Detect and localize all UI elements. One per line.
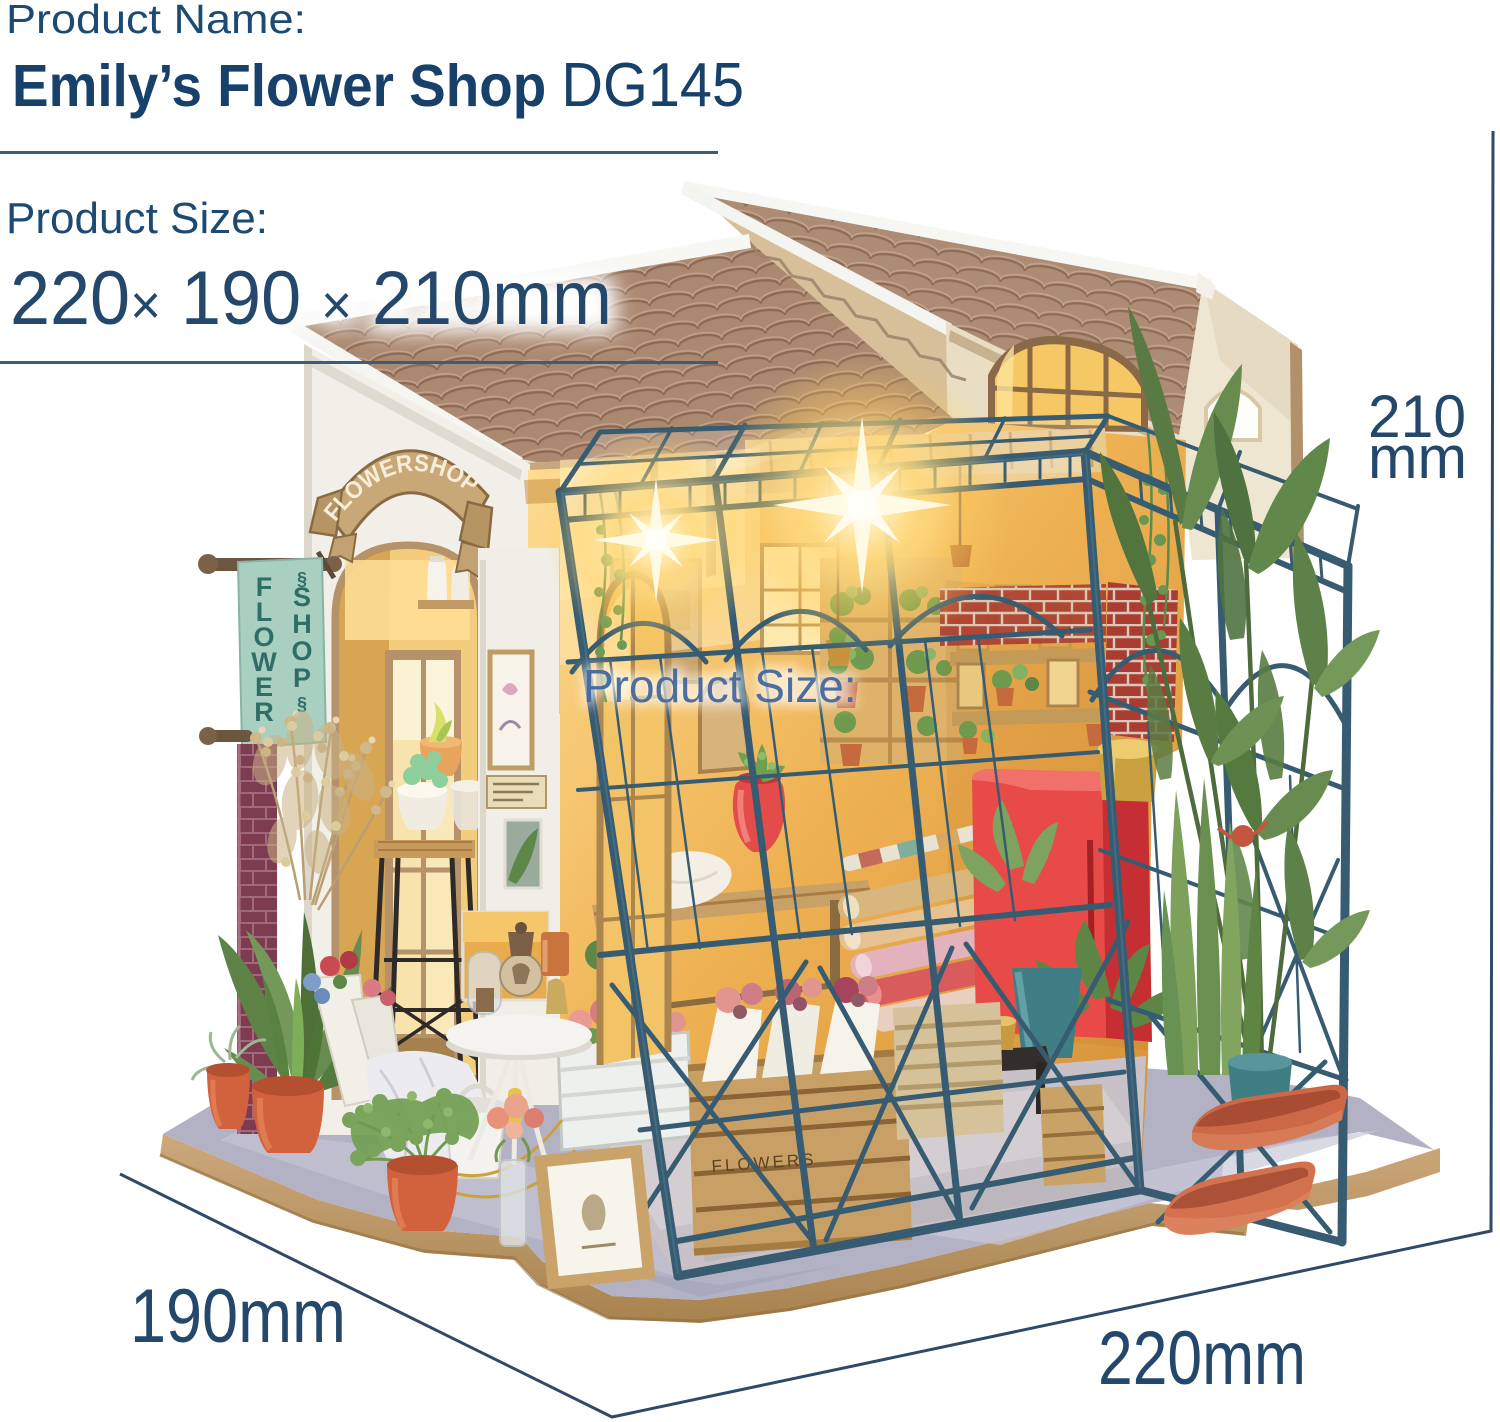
svg-text:220× 190 × 210mm: 220× 190 × 210mm — [10, 256, 612, 341]
svg-text:R: R — [254, 697, 274, 727]
svg-text:P: P — [293, 663, 311, 693]
svg-text:O: O — [291, 636, 312, 666]
svg-text:mm: mm — [1368, 424, 1467, 491]
svg-text:§: § — [297, 569, 307, 589]
svg-text:Emily’s Flower Shop DG145: Emily’s Flower Shop DG145 — [12, 51, 744, 120]
svg-text:Product Size:: Product Size: — [6, 194, 268, 243]
svg-text:H: H — [292, 609, 312, 639]
svg-text:190mm: 190mm — [130, 1274, 346, 1359]
svg-text:Product Size:: Product Size: — [583, 660, 857, 712]
svg-text:220mm: 220mm — [1098, 1316, 1306, 1401]
svg-text:Product Name:: Product Name: — [6, 0, 306, 42]
